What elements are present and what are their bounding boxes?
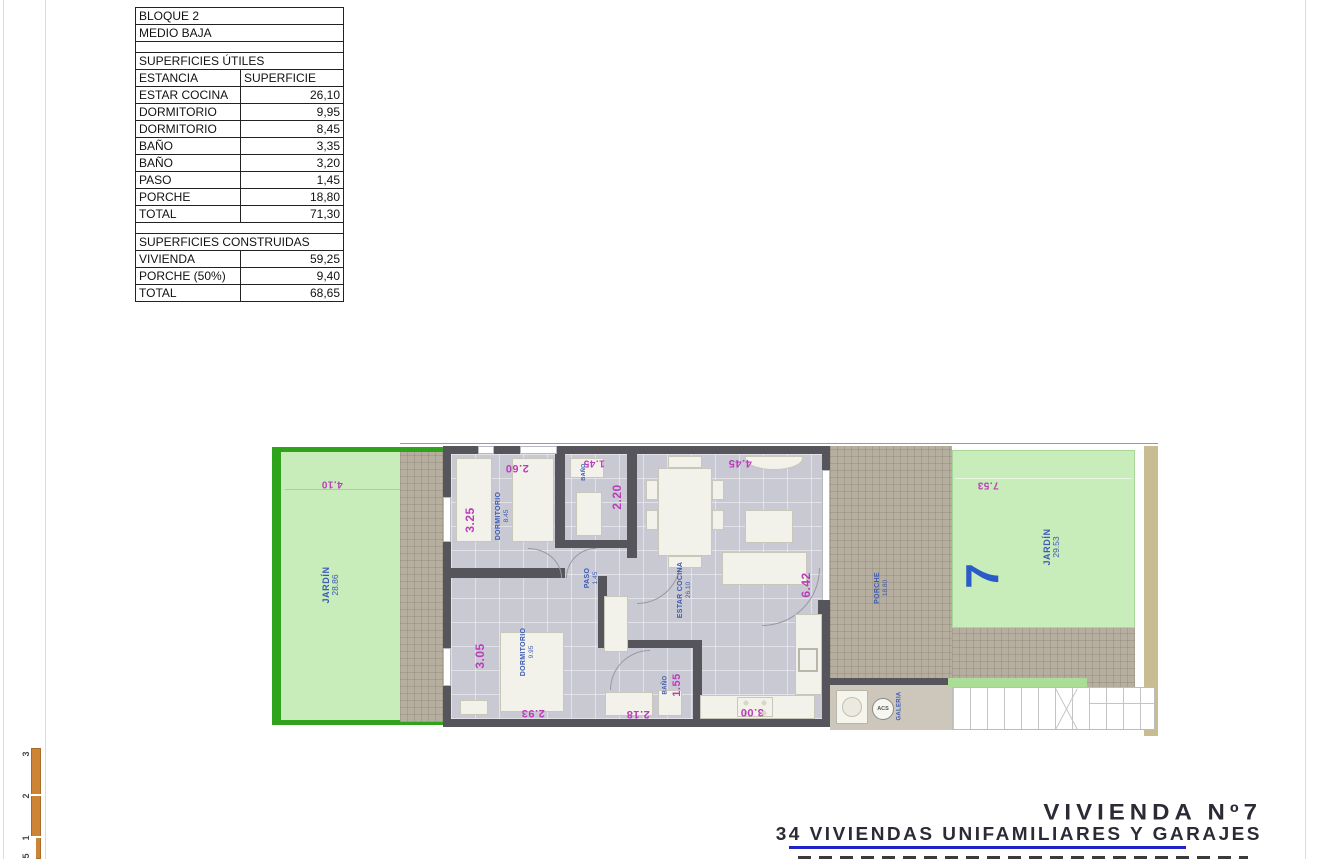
table-row	[136, 223, 344, 234]
right-garden-dim-top: 7.53	[977, 480, 998, 491]
title-underline	[789, 846, 1186, 849]
table-cell-label: TOTAL	[136, 206, 241, 223]
window-top-1	[478, 446, 494, 454]
dim-dorm1-depth: 3.25	[463, 507, 477, 532]
chair	[668, 456, 702, 468]
stair-green-strip	[948, 678, 1087, 687]
room-label-porche: PORCHE 18.80	[874, 572, 890, 604]
dim-estar-top: 4.45	[728, 457, 751, 469]
sofa	[722, 552, 807, 585]
table-row: SUPERFICIES CONSTRUIDAS	[136, 234, 344, 251]
table-cell-label: DORMITORIO	[136, 121, 241, 138]
table-cell-label	[136, 42, 344, 53]
page-frame-line-left-outer	[3, 0, 4, 859]
table-row: MEDIO BAJA	[136, 25, 344, 42]
table-cell-value: 18,80	[241, 189, 344, 206]
table-cell-value: 9,40	[241, 268, 344, 285]
title-project: 34 VIVIENDAS UNIFAMILIARES Y GARAJES	[776, 825, 1262, 846]
table-cell-label: PASO	[136, 172, 241, 189]
wall-dorm1-bath1	[555, 454, 565, 546]
table-cell-label: BAÑO	[136, 138, 241, 155]
scale-half-segment	[31, 838, 36, 859]
surface-areas-table: BLOQUE 2MEDIO BAJASUPERFICIES ÚTILESESTA…	[135, 7, 344, 302]
table-cell-value: SUPERFICIE	[241, 70, 344, 87]
table-row: BLOQUE 2	[136, 8, 344, 25]
washing-machine-icon	[836, 690, 868, 724]
sideboard	[745, 510, 793, 543]
table-row: ESTAR COCINA26,10	[136, 87, 344, 104]
dim-estar-bottom: 3.00	[740, 706, 763, 718]
table-cell-label: VIVIENDA	[136, 251, 241, 268]
room-label-estar-cocina: ESTAR COCINA 26.10	[677, 562, 693, 618]
table-cell-value: 1,45	[241, 172, 344, 189]
table-row: SUPERFICIES ÚTILES	[136, 53, 344, 70]
dim-bath1-depth: 2.20	[610, 484, 624, 509]
acs-water-heater-icon: ACS	[872, 698, 894, 720]
scale-tick	[31, 794, 41, 796]
patio-door-opening	[822, 470, 830, 610]
dim-bath2: 1.55	[671, 673, 683, 696]
table-cell-value: 71,30	[241, 206, 344, 223]
chair	[712, 480, 724, 500]
kitchen-sink	[798, 648, 818, 672]
room-label-dorm-bottom: DORMITORIO 9.95	[520, 628, 536, 676]
table-cell-label: PORCHE (50%)	[136, 268, 241, 285]
table-cell-label: MEDIO BAJA	[136, 25, 344, 42]
dim-dorm2-depth: 3.05	[473, 643, 487, 668]
room-label-galeria: GALERIA	[897, 691, 904, 720]
page-frame-line-left-inner	[45, 0, 46, 859]
table-row: BAÑO3,35	[136, 138, 344, 155]
bath1-shower	[576, 492, 602, 536]
nightstand	[460, 700, 488, 715]
dim-estar-right: 6.42	[799, 572, 813, 597]
dining-table	[658, 468, 712, 556]
right-garden-label: JARDÍN 29.53	[1042, 528, 1062, 565]
window-dorm-bottom	[443, 648, 451, 686]
table-cell-label: SUPERFICIES ÚTILES	[136, 53, 344, 70]
table-row: TOTAL68,65	[136, 285, 344, 302]
table-cell-label: ESTANCIA	[136, 70, 241, 87]
rear-terrace-hatch	[400, 452, 443, 722]
dim-dorm2-width: 2.93	[521, 707, 544, 719]
title-vivienda: VIVIENDA Nº7	[1043, 800, 1262, 826]
table-cell-label: PORCHE	[136, 189, 241, 206]
exterior-stairs	[952, 687, 1155, 730]
table-cell-label	[136, 223, 344, 234]
table-row	[136, 42, 344, 53]
dim-bath2-width: 2.18	[626, 708, 649, 720]
table-row: TOTAL71,30	[136, 206, 344, 223]
room-label-bath-bottom: BAÑO	[663, 676, 670, 695]
table-cell-value: 59,25	[241, 251, 344, 268]
room-label-dorm-top: DORMITORIO 8.45	[495, 492, 511, 540]
left-garden-dim-top: 4.10	[321, 479, 342, 490]
table-cell-label: TOTAL	[136, 285, 241, 302]
wall-bath1-bottom	[555, 540, 637, 548]
table-cell-value: 8,45	[241, 121, 344, 138]
table-row: DORMITORIO8,45	[136, 121, 344, 138]
table-cell-value: 9,95	[241, 104, 344, 121]
chair	[712, 510, 724, 530]
dim-dorm1-width: 2.60	[505, 462, 528, 474]
table-cell-label: ESTAR COCINA	[136, 87, 241, 104]
table-cell-label: DORMITORIO	[136, 104, 241, 121]
plan-sheet: BLOQUE 2MEDIO BAJASUPERFICIES ÚTILESESTA…	[0, 0, 1320, 859]
table-cell-value: 68,65	[241, 285, 344, 302]
table-row: PASO1,45	[136, 172, 344, 189]
table-row: BAÑO3,20	[136, 155, 344, 172]
left-garden-label: JARDÍN 28.86	[321, 566, 341, 603]
window-top-2	[520, 446, 557, 454]
table-cell-value: 3,35	[241, 138, 344, 155]
table-row: PORCHE18,80	[136, 189, 344, 206]
table-row: VIVIENDA59,25	[136, 251, 344, 268]
site-boundary-line	[400, 443, 1158, 444]
chair	[646, 480, 658, 500]
table-cell-label: BAÑO	[136, 155, 241, 172]
scale-number: 5	[21, 853, 31, 858]
table-cell-label: BLOQUE 2	[136, 8, 344, 25]
page-frame-line-right	[1305, 0, 1306, 859]
room-label-paso: PASO 1.45	[584, 568, 600, 589]
galeria-wall	[830, 678, 952, 685]
table-cell-value: 3,20	[241, 155, 344, 172]
window-dorm-top	[443, 497, 451, 542]
table-cell-label: SUPERFICIES CONSTRUIDAS	[136, 234, 344, 251]
scale-number: 1	[21, 835, 31, 840]
washer-drum-icon	[842, 697, 862, 717]
stair-landing-line	[1090, 703, 1155, 704]
table-row: DORMITORIO9,95	[136, 104, 344, 121]
table-row: PORCHE (50%)9,40	[136, 268, 344, 285]
side-path	[1135, 450, 1144, 690]
scale-number: 2	[21, 793, 31, 798]
table-cell-value: 26,10	[241, 87, 344, 104]
scale-number: 3	[21, 751, 31, 756]
closet	[604, 596, 628, 652]
room-label-bath-top: BAÑO	[581, 463, 587, 480]
unit-number: 7	[955, 563, 1009, 589]
table-row: ESTANCIASUPERFICIE	[136, 70, 344, 87]
chair	[646, 510, 658, 530]
